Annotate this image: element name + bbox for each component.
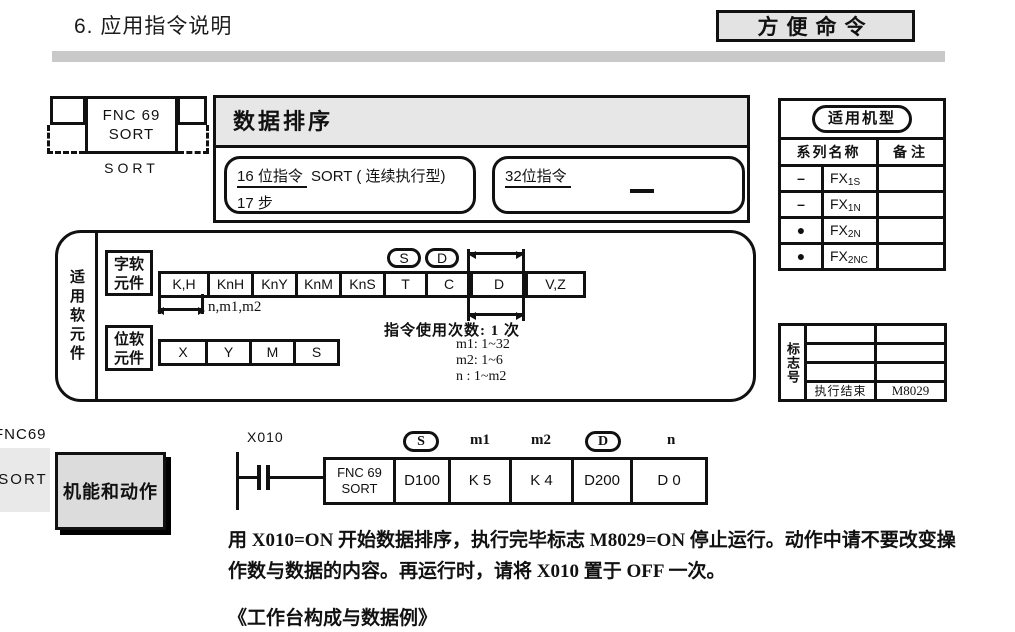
word-device-cell: K,H [161,274,207,295]
operand-range-note: n,m1,m2 [208,299,261,316]
bit16-detail: SORT ( 连续执行型) [311,168,445,185]
dimension-line [522,249,525,321]
operand-tag: m2 [531,432,551,449]
chapter-title: 6. 应用指令说明 [74,10,232,40]
bit-device-cell: S [293,342,337,363]
table-row: ● FX2N [781,216,943,242]
model-support-mark: – [781,167,824,190]
usage-m1: m1: 1~32 [456,337,510,353]
bit-device-cell: M [249,342,293,363]
model-note [879,167,943,190]
table-row [807,326,944,342]
applicable-devices-box: 适用软元件 字软 元件 K,H KnH KnY KnM KnS T C D V,… [55,230,756,402]
table-row: ● FX2NC [781,242,943,268]
dimension-arrow-icon [158,308,204,311]
flag-section-label: 标志号 [781,326,807,399]
operand-tag: n [667,432,675,449]
model-name: FX2NC [824,245,879,268]
operand-cell: D100 [393,460,448,502]
usage-m2: m2: 1~6 [456,353,503,369]
dimension-arrow-icon [470,313,522,316]
model-note [879,219,943,242]
devices-section-label: 适用软元件 [58,233,98,399]
dest-operand-oval: D [425,248,459,268]
operand-tag: m1 [470,432,490,449]
ladder-wire [236,476,257,479]
table-row [807,361,944,380]
ladder-instruction-box: FNC 69 SORT D100 K 5 K 4 D200 D 0 [323,457,708,505]
instruction-symbol-box: FNC 69 SORT [85,96,178,154]
bit32-none-dash [630,189,654,193]
instruction-mnemonic: SORT [88,125,175,144]
table-row: – FX1N [781,190,943,216]
side-tab-mnemonic: SORT [0,448,50,512]
table-row: 执行结束 M8029 [807,380,944,399]
word-device-tag: 字软 元件 [105,250,153,296]
bit-device-tag: 位软 元件 [105,325,153,371]
model-name: FX1N [824,193,879,216]
flag-table: 标志号 执行结束 M8029 [778,323,947,402]
bit16-instruction-box: 16 位指令 SORT ( 连续执行型) 17 步 [224,156,476,214]
instruction-title: 数据排序 [216,98,747,148]
description-line: 作数与数据的内容。再运行时，请将 X010 置于 OFF 一次。 [228,556,1014,587]
symbol-left-cell [50,96,86,125]
bit32-instruction-box: 32位指令 [492,156,745,214]
model-support-mark: – [781,193,824,216]
applicable-models-table: 适用机型 系列名称 备注 – FX1S – FX1N ● FX2N ● FX2N… [778,98,946,271]
model-note [879,245,943,268]
instruction-fnc-number: FNC 69 [88,106,175,125]
symbol-right-cell [177,96,207,125]
contact-icon [257,465,261,490]
operand-cell: D200 [571,460,630,502]
operand-cell: K 4 [509,460,571,502]
ladder-wire [270,476,323,479]
word-device-cell: D [470,274,525,295]
word-device-cell: KnH [207,274,251,295]
bit-device-row: X Y M S [158,339,340,366]
operand-cell: K 5 [448,460,509,502]
flag-name: 执行结束 [807,383,877,399]
contact-label: X010 [247,429,284,445]
model-support-mark: ● [781,219,824,242]
bit-device-cell: Y [205,342,249,363]
operand-cell: D 0 [630,460,705,502]
description-line: 用 X010=ON 开始数据排序，执行完毕标志 M8029=ON 停止运行。动作… [228,525,1014,556]
model-name: FX2N [824,219,879,242]
word-device-cell: KnY [251,274,295,295]
models-title-oval: 适用机型 [812,105,912,133]
bit-device-cell: X [161,342,205,363]
symbol-left-dashed-cell [47,125,85,154]
model-name: FX1S [824,167,879,190]
symbol-caption: SORT [85,160,178,176]
dimension-line [467,249,470,321]
ladder-left-rail [236,452,239,510]
dest-operand-oval: D [585,431,621,452]
title-divider-bar [52,51,945,62]
bit16-label: 16 位指令 [237,168,307,188]
flag-value: M8029 [877,383,944,399]
category-tag: 方便命令 [716,10,915,42]
bit16-steps: 17 步 [237,192,473,213]
models-header-note: 备注 [879,140,943,164]
ladder-fnc-cell: FNC 69 SORT [326,460,393,502]
example-subtitle: 《工作台构成与数据例》 [228,603,437,630]
model-support-mark: ● [781,245,824,268]
word-device-cell: C [425,274,470,295]
manual-page: 6. 应用指令说明 方便命令 FNC 69 SORT SORT 数据排序 16 … [0,0,1015,632]
symbol-right-dashed-cell [178,125,209,154]
dimension-arrow-icon [470,252,522,255]
table-row [807,342,944,361]
word-device-cell: KnS [339,274,383,295]
description-paragraph: 用 X010=ON 开始数据排序，执行完毕标志 M8029=ON 停止运行。动作… [228,525,1014,587]
word-device-cell: T [383,274,425,295]
model-note [879,193,943,216]
models-header-series: 系列名称 [781,140,879,164]
bit32-label: 32位指令 [505,168,571,188]
word-device-cell: KnM [295,274,339,295]
function-section-heading: 机能和动作 [55,452,166,530]
side-tab-fnc-number: FNC69 [0,426,47,443]
source-operand-oval: S [387,248,421,268]
source-operand-oval: S [403,431,439,452]
instruction-header-box: 数据排序 16 位指令 SORT ( 连续执行型) 17 步 32位指令 [213,95,750,223]
usage-n: n : 1~m2 [456,369,506,385]
table-row: – FX1S [781,164,943,190]
word-device-cell: V,Z [525,274,583,295]
